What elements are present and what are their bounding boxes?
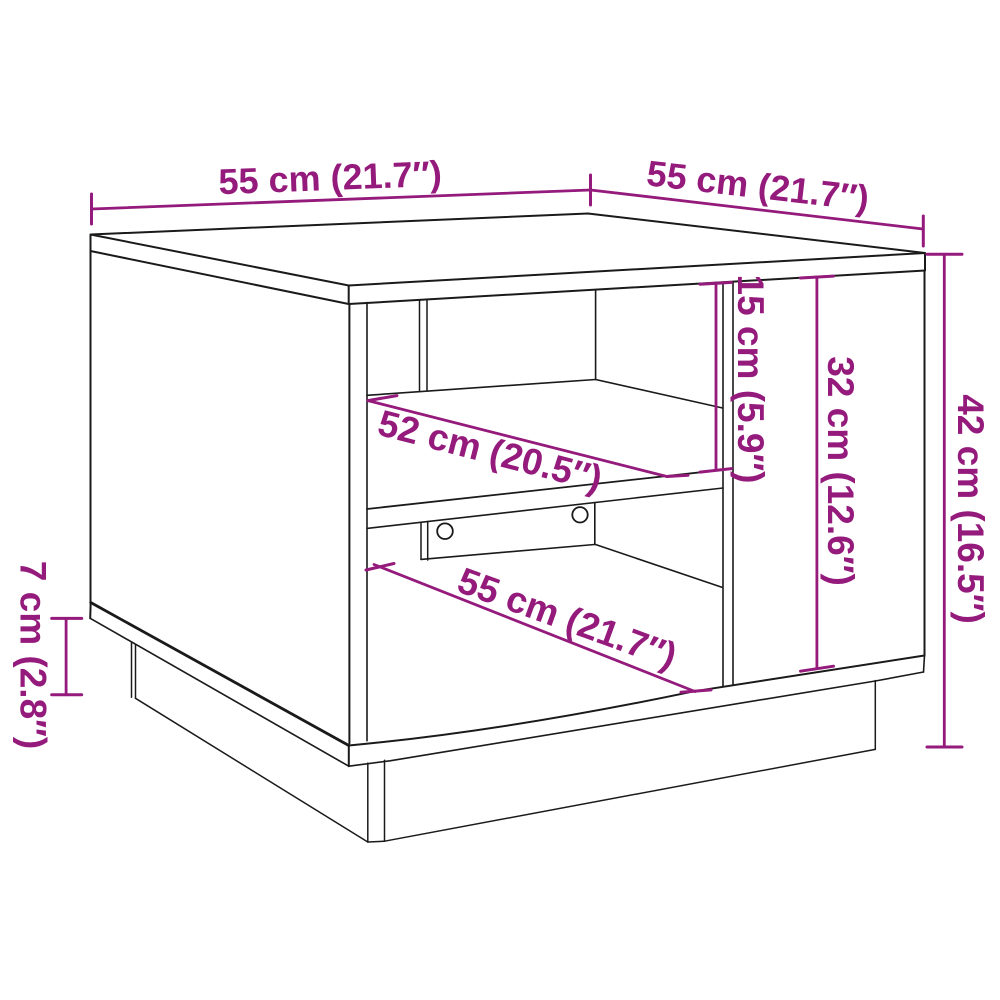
svg-text:7 cm (2.8″): 7 cm (2.8″)	[13, 561, 54, 749]
svg-text:42 cm (16.5″): 42 cm (16.5″)	[950, 394, 991, 624]
svg-text:55 cm (21.7″): 55 cm (21.7″)	[452, 560, 682, 677]
svg-text:15 cm (5.9″): 15 cm (5.9″)	[730, 275, 771, 484]
svg-text:32 cm (12.6″): 32 cm (12.6″)	[820, 356, 861, 586]
svg-text:52 cm (20.5″): 52 cm (20.5″)	[374, 402, 607, 499]
svg-text:55 cm (21.7″): 55 cm (21.7″)	[218, 153, 443, 203]
